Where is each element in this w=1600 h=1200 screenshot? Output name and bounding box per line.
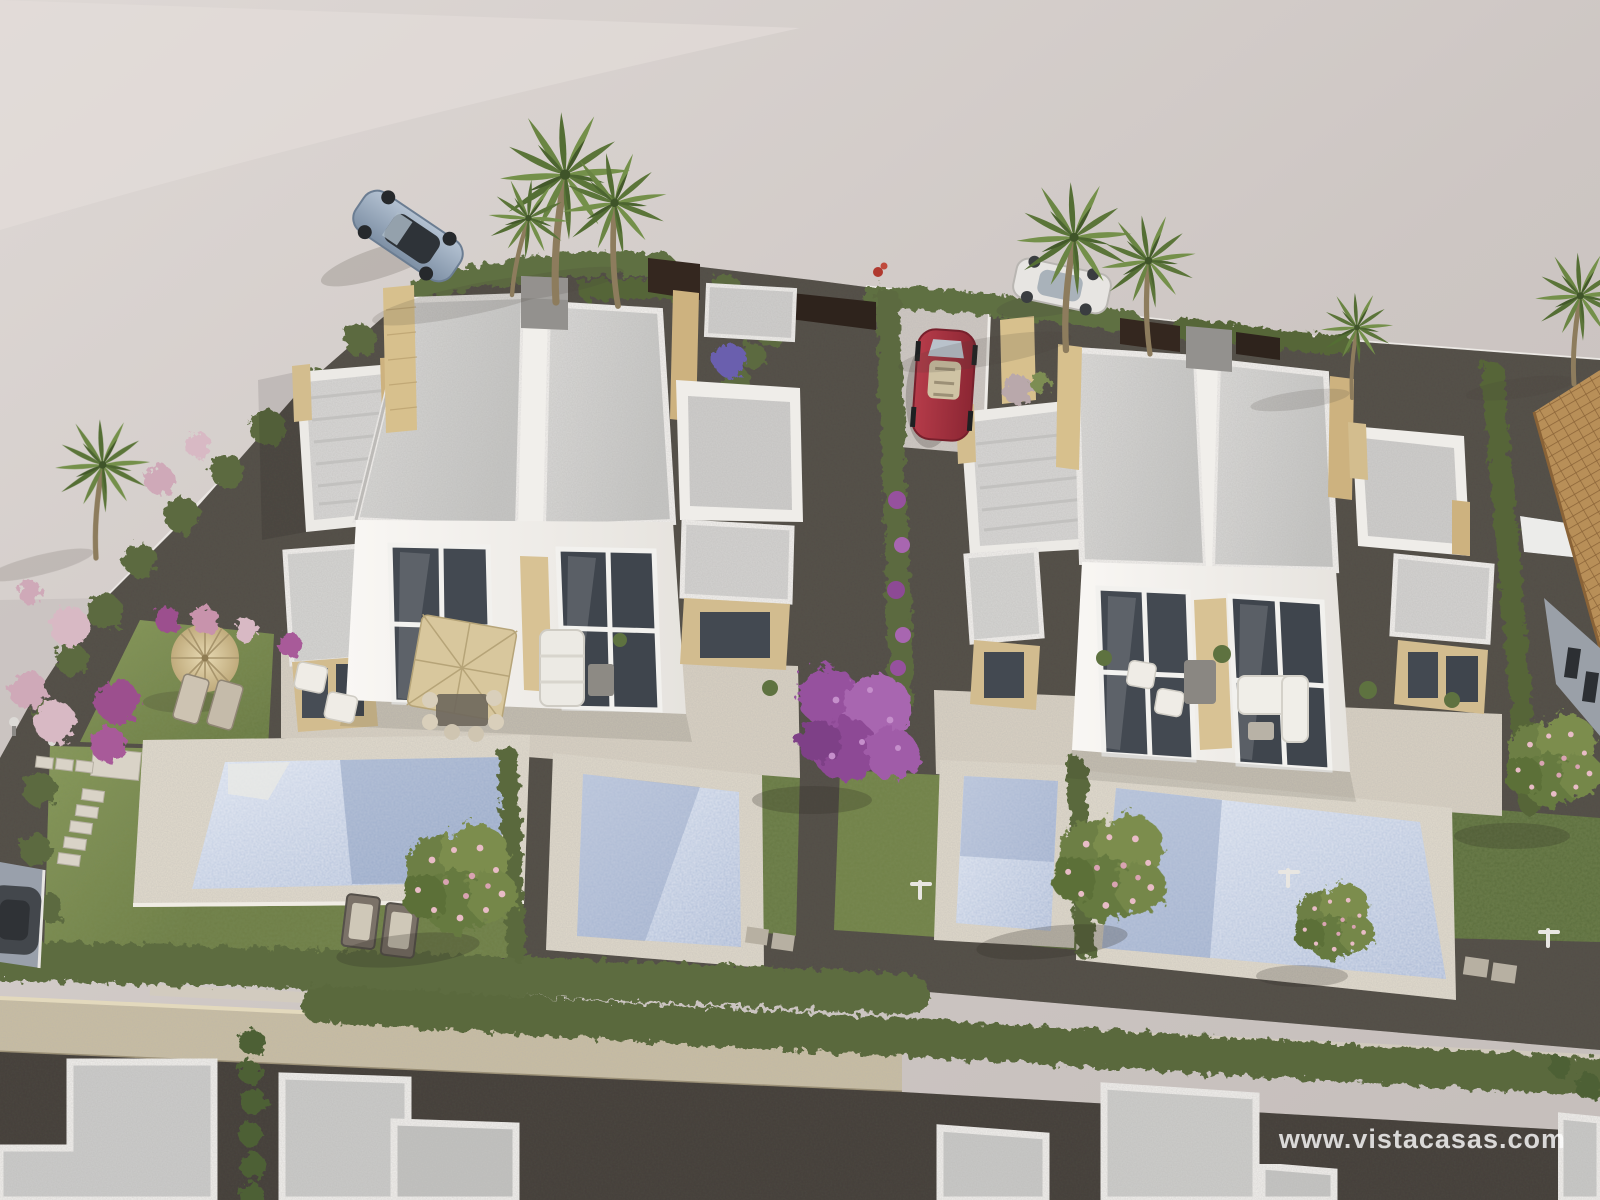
outdoor-cabinet [1184,660,1216,704]
sofa [540,630,584,706]
aerial-render: www.vistacasas.com [0,0,1600,1200]
villa-left-facade [346,520,686,714]
car-dark [0,862,45,968]
villa-right-annex-low [966,550,1042,710]
pool-b [546,753,764,968]
ac-unit [1186,326,1232,372]
right-terrace-sofa [1238,676,1308,742]
pool-c [934,760,1080,948]
chimney [1056,344,1082,470]
watermark: www.vistacasas.com [1278,1124,1566,1154]
